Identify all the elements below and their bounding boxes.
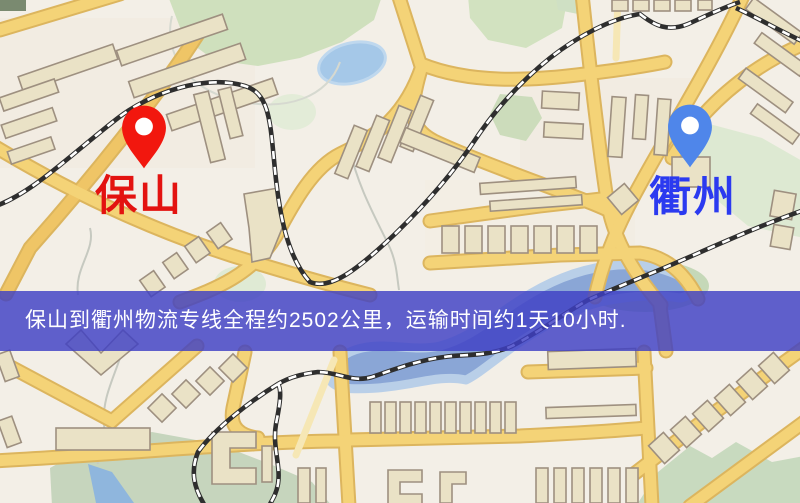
map-canvas xyxy=(0,0,800,503)
origin-label: 保山 xyxy=(39,176,239,218)
origin-pin xyxy=(121,104,167,170)
destination-pin xyxy=(667,103,713,169)
route-map-image: 保山 衢州 保山到衢州物流专线全程约2502公里，运输时间约1天10小时. xyxy=(0,0,800,503)
destination-pin-icon xyxy=(667,103,713,169)
destination-label: 衢州 xyxy=(593,177,793,219)
route-banner-text: 保山到衢州物流专线全程约2502公里，运输时间约1天10小时. xyxy=(25,309,627,332)
route-banner: 保山到衢州物流专线全程约2502公里，运输时间约1天10小时. xyxy=(0,291,800,351)
origin-pin-icon xyxy=(121,104,167,170)
